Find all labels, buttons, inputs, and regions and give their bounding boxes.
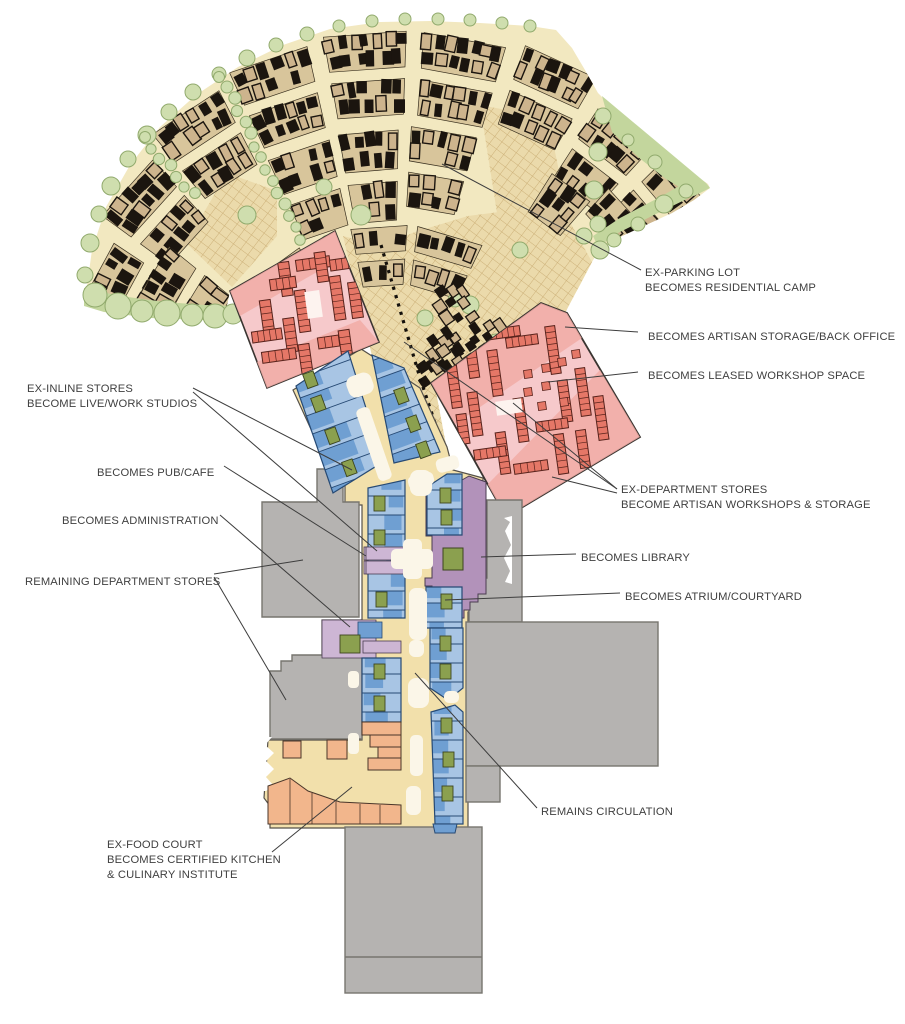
svg-text:BECOMES CERTIFIED KITCHEN: BECOMES CERTIFIED KITCHEN	[107, 854, 281, 866]
svg-text:EX-DEPARTMENT STORES: EX-DEPARTMENT STORES	[621, 484, 767, 496]
svg-text:BECOMES LIBRARY: BECOMES LIBRARY	[581, 552, 690, 564]
svg-text:EX-PARKING LOT: EX-PARKING LOT	[645, 267, 740, 279]
svg-text:BECOMES PUB/CAFE: BECOMES PUB/CAFE	[97, 467, 214, 479]
svg-text:BECOMES LEASED WORKSHOP SPACE: BECOMES LEASED WORKSHOP SPACE	[648, 370, 865, 382]
svg-text:BECOMES ATRIUM/COURTYARD: BECOMES ATRIUM/COURTYARD	[625, 591, 802, 603]
svg-text:REMAINS CIRCULATION: REMAINS CIRCULATION	[541, 806, 673, 818]
svg-text:BECOME LIVE/WORK STUDIOS: BECOME LIVE/WORK STUDIOS	[27, 398, 197, 410]
svg-text:BECOMES RESIDENTIAL CAMP: BECOMES RESIDENTIAL CAMP	[645, 282, 816, 294]
svg-text:BECOMES ADMINISTRATION: BECOMES ADMINISTRATION	[62, 515, 219, 527]
svg-text:BECOME ARTISAN WORKSHOPS & STO: BECOME ARTISAN WORKSHOPS & STORAGE	[621, 499, 871, 511]
svg-text:BECOMES ARTISAN STORAGE/BACK O: BECOMES ARTISAN STORAGE/BACK OFFICE	[648, 331, 895, 343]
svg-text:REMAINING DEPARTMENT STORES: REMAINING DEPARTMENT STORES	[25, 576, 220, 588]
svg-text:EX-INLINE STORES: EX-INLINE STORES	[27, 383, 133, 395]
svg-text:& CULINARY INSTITUTE: & CULINARY INSTITUTE	[107, 869, 238, 881]
svg-text:EX-FOOD COURT: EX-FOOD COURT	[107, 839, 203, 851]
